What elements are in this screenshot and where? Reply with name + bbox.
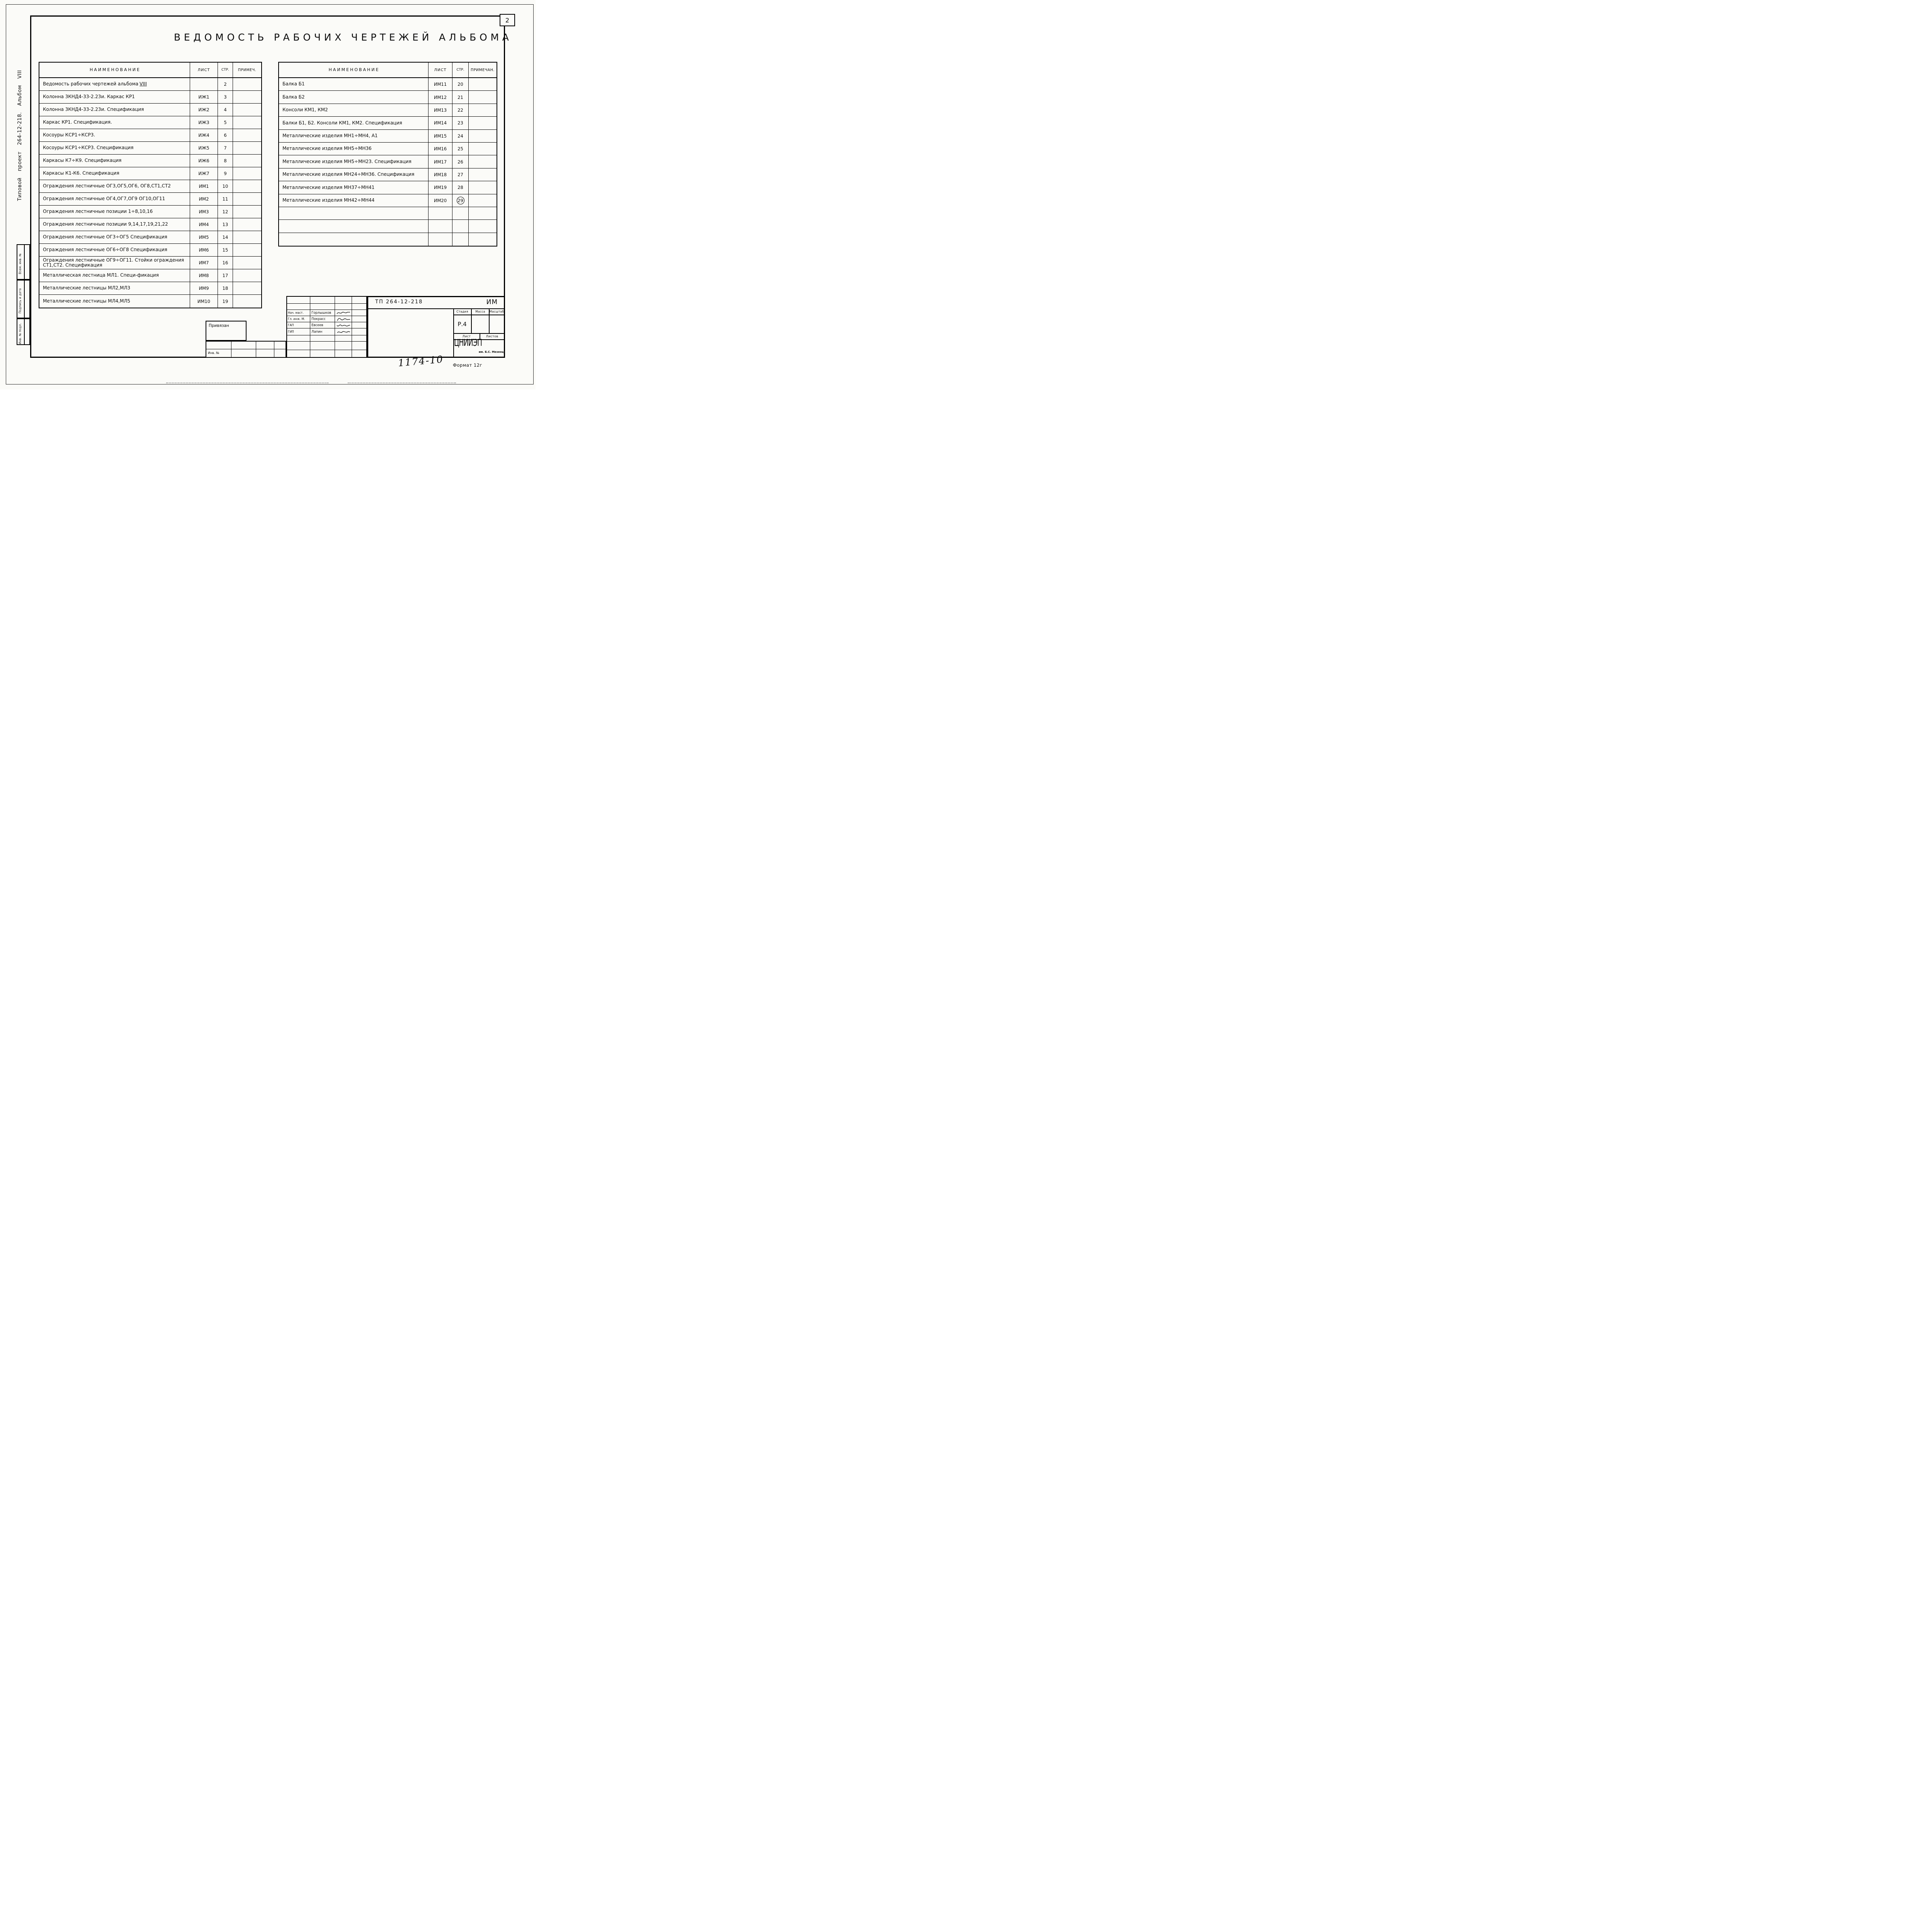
table-row: Консоли КМ1, КМ2 ИМ13 22 [279,104,497,117]
cell-sheet: ИМ2 [190,193,218,205]
cell-page: 26 [452,155,469,168]
cell-sheet: ИМ16 [429,143,452,155]
page-cell-value: 8 [224,158,226,163]
cell-note [469,91,497,103]
cell-sheet [429,233,452,246]
cell-page [452,207,469,219]
cell-note [233,269,261,282]
cell-page: 10 [218,180,233,192]
cell-note [233,282,261,294]
page-cell-value: 21 [457,95,463,100]
cell-page: 11 [218,193,233,205]
stamp-divider [24,319,25,344]
cell-name: Ограждения лестничные позиции 9,14,17,19… [39,218,190,231]
table-row: Ограждения лестничные позиции 9,14,17,19… [39,218,261,231]
stamp-box-vzam-inv: Взам. инв. № [17,244,30,280]
inventory-number-label: Инв. № [208,351,219,355]
stamp-label: Взам. инв. № [19,245,22,283]
row-name-text: Каркас КР1. Спецификация. [43,120,112,125]
row-name-text: Косоуры КСР1÷КСР3. Спецификация [43,145,133,150]
row-name-text: Балка Б2 [282,95,305,100]
cell-sheet: ИЖ4 [190,129,218,141]
signature-cell [335,310,352,316]
cell-name: Ограждения лестничные ОГ9÷ОГ11. Стойки о… [39,257,190,269]
cell-page: 7 [218,142,233,154]
table-row: Колонна 3КНД4-33-2.23и. Спецификация ИЖ2… [39,104,261,116]
org-name: ЦНИИЭП [454,339,482,348]
name-cell: Лапин [310,328,335,335]
cell-page: 25 [452,143,469,155]
cell-name: Металлическая лестница МЛ1. Специ-фикаци… [39,269,190,282]
col-header-sheet: ЛИСТ [190,63,218,77]
table-row: Ограждения лестничные ОГ6÷ОГ8 Спецификац… [39,244,261,257]
cell-page: 16 [218,257,233,269]
cell-note [469,78,497,90]
page-cell-value: 14 [223,235,228,240]
row-name-text: Ограждения лестничные ОГ4,ОГ7,ОГ9 ОГ10,О… [43,196,165,201]
page-cell-value: 27 [457,172,463,177]
right-table-body: Балка Б1 ИМ11 20 Балка Б2 ИМ12 21 [279,78,497,246]
staff-row: ГИП Лапин [287,328,366,335]
signature-cell [335,322,352,328]
cell-note [233,257,261,269]
table-row: Косоуры КСР1÷КСР3. Спецификация ИЖ5 7 [39,142,261,155]
cell-sheet: ИМ19 [429,181,452,194]
project-code: ТП 264-12-218 [375,299,423,305]
cell-sheet: ИМ3 [190,206,218,218]
cell-sheet: ИМ12 [429,91,452,103]
cell-note [233,295,261,308]
row-name-text: Металлические лестницы МЛ2,МЛ3 [43,286,130,291]
col-header-name: НАИМЕНОВАНИЕ [279,63,429,77]
cell-name: Металлические изделия МН1÷МН4, А1 [279,130,429,142]
cell-name: Косоуры КСР1÷КСР3. [39,129,190,141]
cell-name: Ограждения лестничные ОГ6÷ОГ8 Спецификац… [39,244,190,256]
cell-name: Ограждения лестничные ОГ3÷ОГ5 Спецификац… [39,231,190,243]
cell-name: Металлические изделия МН5÷МН23. Специфик… [279,155,429,168]
cell-note [469,207,497,219]
inventory-grid: Инв. № [206,341,286,358]
title-block: ТП 264-12-218 ИМ Стадия Масса Масштаб Р.… [367,296,505,358]
col-header-note: ПРИМЕЧАН. [469,63,497,77]
cell-note [469,104,497,116]
right-table: НАИМЕНОВАНИЕ ЛИСТ СТР. ПРИМЕЧАН. Балка Б… [278,62,497,247]
cell-note [469,233,497,246]
row-name-text: Косоуры КСР1÷КСР3. [43,133,95,138]
page-cell-value: 28 [457,185,463,190]
row-name-text: Металлические изделия МН5÷МН36 [282,146,372,151]
cell-page: 15 [218,244,233,256]
table-row: Колонна 3КНД4-33-2.23и. Каркас КР1 ИЖ1 3 [39,91,261,104]
scale-header: Масштаб [490,309,504,315]
cell-name: Колонна 3КНД4-33-2.23и. Каркас КР1 [39,91,190,103]
page-cell-value: 9 [224,171,226,176]
cell-note [233,167,261,180]
row-name-text: Ограждения лестничные позиции 9,14,17,19… [43,222,168,227]
cell-sheet: ИМ15 [429,130,452,142]
cell-page: 29 [452,194,469,207]
row-name-text: Металлические изделия МН5÷МН23. Специфик… [282,159,412,164]
page-cell-value: 13 [223,222,228,227]
cell-sheet [190,78,218,90]
cell-note [233,231,261,243]
name-cell: Покрасс [310,316,335,322]
attach-box: Привязан [206,321,247,341]
drawing-title: ВЕДОМОСТЬ РАБОЧИХ ЧЕРТЕЖЕЙ АЛЬБОМА [174,32,398,43]
stamp-divider [24,281,25,318]
cell-page: 23 [452,117,469,129]
table-row: Балка Б2 ИМ12 21 [279,91,497,104]
stamp-divider [24,245,25,279]
cell-page: 6 [218,129,233,141]
cell-sheet [429,220,452,232]
stamp-box-inv-podl: Инв. № подл. [17,318,30,345]
cell-page: 28 [452,181,469,194]
row-name-text: Металлические изделия МН42÷МН44 [282,198,374,203]
cell-note [233,180,261,192]
project-side-label: Типовой проект 264-12-218. Альбом VIII [17,19,23,201]
cell-name: Ограждения лестничные ОГ3,ОГ5,ОГ6, ОГ8,С… [39,180,190,192]
name-cell: Горлышков [310,310,335,316]
page-cell-value: 4 [224,107,226,112]
row-name-text: Балка Б1 [282,82,305,87]
cell-note [233,155,261,167]
cell-name [279,220,429,232]
cell-page: 9 [218,167,233,180]
cell-page: 27 [452,168,469,181]
cell-name: Балка Б2 [279,91,429,103]
role-cell: Гл. инж. М. [287,316,310,322]
cell-sheet: ИЖ5 [190,142,218,154]
right-table-header-row: НАИМЕНОВАНИЕ ЛИСТ СТР. ПРИМЕЧАН. [279,63,497,78]
cell-note [233,244,261,256]
cell-page: 4 [218,104,233,116]
row-name-suffix: VIII [139,82,147,87]
row-name-text: Металлические лестницы МЛ4,МЛ5 [43,299,130,304]
signature-cell [335,328,352,335]
cell-name: Ведомость рабочих чертежей альбомаVIII [39,78,190,90]
row-name-text: Ограждения лестничные ОГ6÷ОГ8 Спецификац… [43,247,167,252]
table-row: Косоуры КСР1÷КСР3. ИЖ4 6 [39,129,261,142]
staff-row: ГАП Евсеев [287,322,366,328]
cell-page: 13 [218,218,233,231]
stage-header: Стадия [454,309,471,315]
cell-page: 21 [452,91,469,103]
cell-sheet: ИМ10 [190,295,218,308]
cell-note [233,129,261,141]
page-cell-value: 18 [223,286,228,291]
table-row: Металлические изделия МН1÷МН4, А1 ИМ15 2… [279,130,497,143]
table-row: Металлические изделия МН24÷МН36. Специфи… [279,168,497,181]
cell-page: 19 [218,295,233,308]
name-cell: Евсеев [310,322,335,328]
organization-cell: ЦНИИЭП им. Б.С. Мезенцева [454,339,505,356]
mass-header: Масса [472,309,489,315]
cell-sheet: ИМ5 [190,231,218,243]
table-row: Ведомость рабочих чертежей альбомаVIII 2 [39,78,261,91]
cell-sheet: ИМ1 [190,180,218,192]
cell-sheet: ИМ7 [190,257,218,269]
sheet-label: Лист [454,333,480,339]
row-name-text: Каркасы К1-К6. Спецификация [43,171,119,176]
staff-row-empty [287,335,366,342]
table-row: Металлические изделия МН5÷МН36 ИМ16 25 [279,143,497,155]
row-name-text: Балки Б1, Б2. Консоли КМ1, КМ2. Специфик… [282,121,402,126]
cell-note [469,220,497,232]
cell-note [233,91,261,103]
page-cell-value: 15 [223,247,228,253]
cell-page: 22 [452,104,469,116]
cell-note [469,117,497,129]
cell-name: Консоли КМ1, КМ2 [279,104,429,116]
page-cell-value: 24 [457,133,463,139]
grid-line [231,342,231,357]
format-label: Формат 12г [453,362,482,368]
cell-sheet: ИЖ2 [190,104,218,116]
table-row: Балка Б1 ИМ11 20 [279,78,497,91]
row-name-text: Ведомость рабочих чертежей альбома [43,82,138,87]
cell-sheet: ИМ14 [429,117,452,129]
cell-sheet: ИМ11 [429,78,452,90]
row-name-text: Ограждения лестничные позиции 1÷8,10,16 [43,209,153,214]
page-cell-value: 22 [457,107,463,113]
row-name-text: Ограждения лестничные ОГ9÷ОГ11. Стойки о… [43,258,186,268]
cell-sheet: ИЖ3 [190,116,218,129]
table-row: Металлические изделия МН37÷МН41 ИМ19 28 [279,181,497,194]
cell-page: 14 [218,231,233,243]
signature-icon [336,317,351,321]
page-cell-value: 26 [457,159,463,165]
cell-page: 5 [218,116,233,129]
cell-note [233,193,261,205]
page-cell-value: 2 [224,82,226,87]
staff-row: Нач. маст. Горлышков [287,310,366,316]
row-name-text: Металлические изделия МН1÷МН4, А1 [282,133,378,138]
scan-artifact-dots [166,383,328,383]
cell-name: Балка Б1 [279,78,429,90]
sheets-label: Листов [480,333,504,339]
row-name-text: Колонна 3КНД4-33-2.23и. Каркас КР1 [43,94,135,99]
page-cell-value: 25 [457,146,463,151]
role-cell: Нач. маст. [287,310,310,316]
cell-sheet: ИМ20 [429,194,452,207]
grid-line [256,342,256,357]
col-header-page: СТР. [218,63,233,77]
cell-page: 24 [452,130,469,142]
grid-line [274,342,274,357]
left-table-header-row: НАИМЕНОВАНИЕ ЛИСТ СТР. ПРИМЕЧ. [39,63,261,78]
stamp-box-podpis-data: Подпись и дата [17,280,30,318]
cell-sheet: ИЖ1 [190,91,218,103]
table-row: Ограждения лестничные ОГ3÷ОГ5 Спецификац… [39,231,261,244]
cell-page: 3 [218,91,233,103]
cell-name [279,233,429,246]
row-name-text: Каркасы К7÷К9. Спецификация [43,158,121,163]
row-name-text: Металлические изделия МН24÷МН36. Специфи… [282,172,414,177]
page-cell-value: 17 [223,273,228,278]
table-row [279,233,497,246]
signature-cell [335,316,352,322]
row-name-text: Консоли КМ1, КМ2 [282,107,328,112]
stage-value: Р.4 [453,316,471,333]
table-row: Металлические изделия МН5÷МН23. Специфик… [279,155,497,168]
cell-sheet: ИЖ6 [190,155,218,167]
cell-name: Колонна 3КНД4-33-2.23и. Спецификация [39,104,190,116]
table-row: Металлические изделия МН42÷МН44 ИМ20 29 [279,194,497,207]
table-row [279,220,497,233]
page-cell-value: 6 [224,133,226,138]
table-row: Балки Б1, Б2. Консоли КМ1, КМ2. Специфик… [279,117,497,129]
cell-name: Каркасы К1-К6. Спецификация [39,167,190,180]
cell-page: 2 [218,78,233,90]
staff-row-empty [287,297,366,304]
cell-note [469,130,497,142]
table-row: Металлическая лестница МЛ1. Специ-фикаци… [39,269,261,282]
cell-page: 17 [218,269,233,282]
cell-name: Металлические изделия МН24÷МН36. Специфи… [279,168,429,181]
row-name-text: Металлическая лестница МЛ1. Специ-фикаци… [43,273,159,278]
signature-icon [336,311,351,315]
cell-sheet: ИМ9 [190,282,218,294]
table-row: Ограждения лестничные ОГ4,ОГ7,ОГ9 ОГ10,О… [39,193,261,206]
page-cell-value: 7 [224,145,226,151]
cell-sheet: ИМ17 [429,155,452,168]
table-row: Ограждения лестничные ОГ3,ОГ5,ОГ6, ОГ8,С… [39,180,261,193]
row-name-text: Ограждения лестничные ОГ3,ОГ5,ОГ6, ОГ8,С… [43,184,171,189]
cell-page: 12 [218,206,233,218]
role-cell: ГИП [287,328,310,335]
page-cell-value: 20 [457,82,463,87]
cell-note [233,218,261,231]
row-name-text: Ограждения лестничные ОГ3÷ОГ5 Спецификац… [43,235,167,240]
staff-row-empty [287,304,366,310]
table-row: Металлические лестницы МЛ4,МЛ5 ИМ10 19 [39,295,261,308]
staff-row-empty [287,342,366,350]
cell-sheet: ИМ4 [190,218,218,231]
staff-row: Гл. инж. М. Покрасс [287,316,366,322]
page-cell-value: 19 [223,299,228,304]
signature-icon [336,330,351,334]
left-table-body: Ведомость рабочих чертежей альбомаVIII 2… [39,78,261,308]
cell-note [469,155,497,168]
cell-sheet [429,207,452,219]
col-header-sheet: ЛИСТ [429,63,452,77]
staff-row-empty [287,350,366,357]
cell-name: Косоуры КСР1÷КСР3. Спецификация [39,142,190,154]
table-row: Каркас КР1. Спецификация. ИЖ3 5 [39,116,261,129]
page-number: 2 [505,17,509,24]
cell-note [233,116,261,129]
page-cell-value: 10 [223,184,228,189]
org-suffix: им. Б.С. Мезенцева [479,350,505,354]
cell-name: Каркасы К7÷К9. Спецификация [39,155,190,167]
page-number-box: 2 [500,14,515,26]
row-name-text: Металлические изделия МН37÷МН41 [282,185,374,190]
page-cell-value: 11 [223,196,228,202]
cell-note [469,143,497,155]
cell-page [452,233,469,246]
staff-table: Нач. маст. Горлышков Гл. инж. М. Покрасс… [286,296,367,358]
table-row: Металлические лестницы МЛ2,МЛ3 ИМ9 18 [39,282,261,295]
album-code: ИМ [486,298,498,306]
attach-label: Привязан [209,323,229,328]
signature-icon [336,323,351,328]
col-header-name: НАИМЕНОВАНИЕ [39,63,190,77]
page-cell-value: 12 [223,209,228,214]
cell-name [279,207,429,219]
cell-note [233,142,261,154]
col-header-page: СТР. [452,63,469,77]
row-name-text: Колонна 3КНД4-33-2.23и. Спецификация [43,107,144,112]
cell-page: 8 [218,155,233,167]
page-cell-value: 23 [457,120,463,126]
cell-note [233,104,261,116]
cell-page: 20 [452,78,469,90]
table-row: Каркасы К1-К6. Спецификация ИЖ7 9 [39,167,261,180]
cell-sheet: ИМ6 [190,244,218,256]
cell-sheet: ИМ8 [190,269,218,282]
page-cell-value: 29 [457,197,464,204]
role-cell: ГАП [287,322,310,328]
page-cell-value: 16 [223,260,228,265]
drawing-sheet: 2 ВЕДОМОСТЬ РАБОЧИХ ЧЕРТЕЖЕЙ АЛЬБОМА Тип… [0,0,536,389]
cell-sheet: ИМ18 [429,168,452,181]
cell-note [233,78,261,90]
cell-page: 18 [218,282,233,294]
grid-line [453,315,504,315]
cell-name: Металлические лестницы МЛ4,МЛ5 [39,295,190,308]
cell-name: Металлические лестницы МЛ2,МЛ3 [39,282,190,294]
cell-note [469,194,497,207]
cell-name: Металлические изделия МН5÷МН36 [279,143,429,155]
table-row: Каркасы К7÷К9. Спецификация ИЖ6 8 [39,155,261,167]
cell-note [469,181,497,194]
page-cell-value: 5 [224,120,226,125]
cell-note [233,206,261,218]
left-table: НАИМЕНОВАНИЕ ЛИСТ СТР. ПРИМЕЧ. Ведомость… [39,62,262,308]
table-row: Ограждения лестничные ОГ9÷ОГ11. Стойки о… [39,257,261,269]
cell-name: Ограждения лестничные ОГ4,ОГ7,ОГ9 ОГ10,О… [39,193,190,205]
cell-name: Каркас КР1. Спецификация. [39,116,190,129]
page-cell-value: 3 [224,94,226,100]
cell-name: Металлические изделия МН37÷МН41 [279,181,429,194]
cell-name: Металлические изделия МН42÷МН44 [279,194,429,207]
cell-page [452,220,469,232]
cell-note [469,168,497,181]
table-row [279,207,497,220]
cell-sheet: ИМ13 [429,104,452,116]
cell-name: Ограждения лестничные позиции 1÷8,10,16 [39,206,190,218]
cell-name: Балки Б1, Б2. Консоли КМ1, КМ2. Специфик… [279,117,429,129]
col-header-note: ПРИМЕЧ. [233,63,261,77]
table-row: Ограждения лестничные позиции 1÷8,10,16 … [39,206,261,218]
cell-sheet: ИЖ7 [190,167,218,180]
scan-artifact-dots [348,383,456,383]
stamp-label: Инв. № подл. [19,314,22,353]
